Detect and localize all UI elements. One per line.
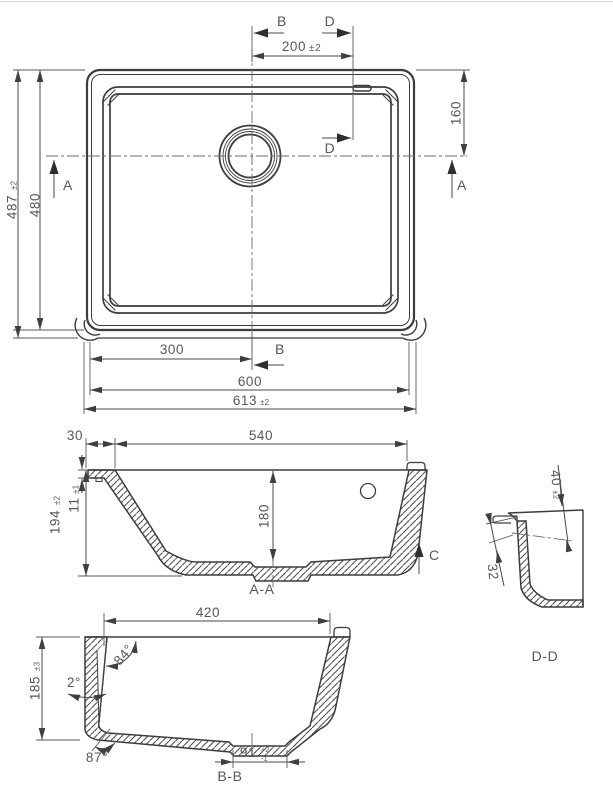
dim-194-group: 194 ±2 — [48, 495, 63, 534]
label-d-top: D — [325, 13, 336, 29]
dim-613-tol: ±2 — [260, 398, 270, 407]
dim-613-label: 613 — [233, 393, 257, 408]
bowl-rim-outer — [103, 87, 398, 313]
bb-rim-bump — [334, 628, 350, 638]
section-b-b: 84° 2° 87° 420 185 ±3 91 +2 -1 B-B — [28, 605, 351, 784]
aa-overflow-hole — [361, 484, 376, 499]
sink-inner-edge — [92, 75, 410, 326]
section-bb-title: B-B — [217, 768, 242, 784]
label-a-left: A — [63, 177, 73, 193]
dim-40-group: 40 ±2 — [548, 469, 566, 500]
sink-outer-edge — [87, 70, 414, 330]
dim-91-label: 91 — [240, 745, 256, 760]
label-b-top: B — [277, 13, 287, 29]
dim-11-label: 11 — [67, 497, 82, 512]
dim-300-label: 300 — [160, 342, 184, 357]
dim-91-tol-minus: -1 — [261, 754, 268, 763]
dim-194-tol: ±2 — [53, 495, 62, 505]
label-a-right: A — [457, 177, 467, 193]
dim-185-tol: ±3 — [33, 661, 42, 671]
dim-30-label: 30 — [67, 428, 83, 443]
plan-extension-lines — [13, 26, 470, 414]
label-c: C — [429, 547, 440, 563]
dim-480-label: 480 — [28, 193, 43, 217]
dim-420-label: 420 — [196, 605, 220, 620]
dim-194-label: 194 — [48, 510, 63, 534]
dim-487-group: 487 ±2 — [5, 180, 20, 219]
dim-180-label: 180 — [257, 504, 272, 528]
dim-200-label: 200 — [282, 39, 306, 54]
dim-200-tol: ±2 — [309, 43, 321, 54]
dim-32-label: 32 — [485, 563, 502, 581]
dim-185-group: 185 ±3 — [28, 661, 43, 700]
section-dd-title: D-D — [532, 648, 559, 664]
plan-view: B D 200 ±2 160 D A A 487 ±2 480 300 B 60… — [5, 13, 471, 414]
dim-185-label: 185 — [28, 676, 43, 700]
dd-material-cross-section — [517, 521, 583, 607]
section-aa-title: A-A — [249, 581, 274, 597]
dim-11-tol: ±1 — [72, 484, 81, 494]
section-d-d: 40 ±2 32 D-D — [485, 465, 583, 664]
label-b-bottom: B — [275, 341, 285, 357]
angle-2-label: 2° — [67, 675, 81, 690]
dim-487-label: 487 — [5, 195, 20, 219]
dim-600-label: 600 — [238, 374, 262, 389]
dim-160-label: 160 — [449, 101, 464, 125]
angle-87-label: 87° — [86, 750, 108, 765]
dim-487-tol: ±2 — [10, 180, 19, 190]
dim-40-tol: ±2 — [551, 490, 561, 500]
dim-11-group: 11 ±1 — [67, 484, 82, 512]
dd-32-extension-lines — [486, 517, 517, 543]
section-a-a: 30 540 194 ±2 11 ±1 180 C A-A — [48, 428, 440, 597]
label-d-mid: D — [325, 140, 336, 156]
aa-rear-rim-bump — [407, 463, 425, 471]
sink-technical-drawing: B D 200 ±2 160 D A A 487 ±2 480 300 B 60… — [0, 0, 613, 800]
sink-technical-drawing-page: B D 200 ±2 160 D A A 487 ±2 480 300 B 60… — [0, 0, 613, 800]
dim-40-label: 40 — [548, 469, 565, 487]
angle-84-label: 84° — [111, 641, 137, 668]
dim-540-label: 540 — [249, 428, 273, 443]
dim-91-tol-plus: +2 — [261, 745, 270, 754]
